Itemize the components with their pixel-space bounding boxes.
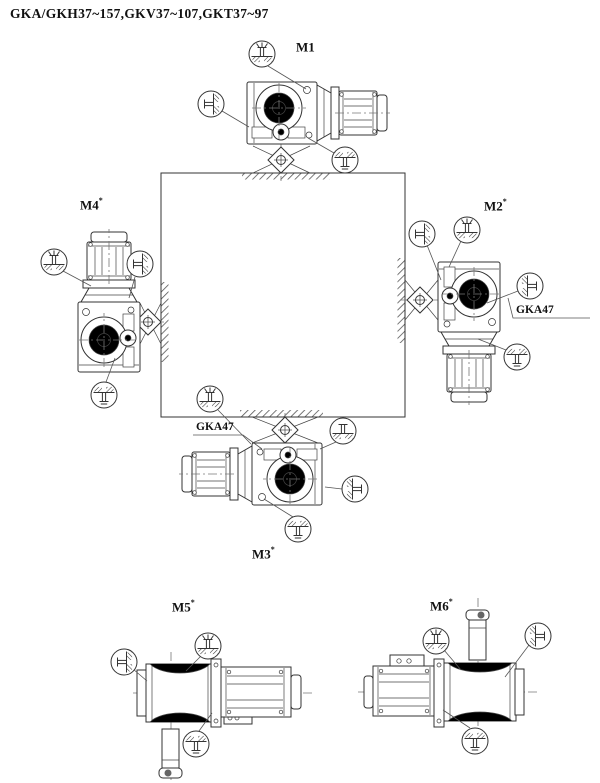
oil-level-plug-icon <box>525 623 551 649</box>
oil-level-plug-icon <box>198 91 224 117</box>
m2-assembly <box>400 217 590 405</box>
m3-flange-mount-symbol <box>272 417 298 443</box>
breather-plug-icon <box>454 217 480 243</box>
breather-plug-icon <box>41 249 67 275</box>
m3-gearmotor-drawing <box>179 443 322 505</box>
oil-drain-plug-icon <box>183 731 209 757</box>
gka47-label-m2: GKA47 <box>516 304 554 316</box>
ceiling-surface-hatch <box>240 410 323 417</box>
mounting-position-diagram-page: GKA/GKH37~157,GKV37~107,GKT37~97 M1 M2* … <box>0 0 600 783</box>
m1-flange-mount-symbol <box>268 147 294 173</box>
position-label-m3: M3* <box>252 546 275 562</box>
m2-gearmotor-drawing <box>438 262 500 405</box>
oil-drain-plug-icon <box>462 728 488 754</box>
oil-drain-plug-icon <box>285 516 311 542</box>
breather-plug-icon <box>195 633 221 659</box>
floor-surface-hatch <box>242 174 330 180</box>
page-title: GKA/GKH37~157,GKV37~107,GKT37~97 <box>10 6 269 22</box>
oil-fill-plug-icon <box>409 221 435 247</box>
position-label-m1: M1 <box>296 39 315 55</box>
m6-assembly <box>358 598 551 754</box>
position-label-m4: M4* <box>80 197 103 213</box>
gka47-label-m3: GKA47 <box>196 421 234 433</box>
right-wall-surface-hatch <box>398 258 405 343</box>
m4-assembly <box>41 229 165 408</box>
mounting-square <box>161 173 405 417</box>
m1-gearmotor-drawing <box>247 82 390 144</box>
m4-gearmotor-drawing <box>78 229 140 372</box>
position-label-m2: M2* <box>484 198 507 214</box>
oil-level-plug-icon <box>111 649 137 675</box>
oil-level-plug-icon <box>127 251 153 277</box>
oil-level-plug-icon <box>517 273 543 299</box>
m1-assembly <box>198 41 390 181</box>
oil-drain-plug-icon <box>332 147 358 173</box>
position-label-m5: M5* <box>172 599 195 615</box>
position-label-m6: M6* <box>430 598 453 614</box>
breather-plug-icon <box>423 628 449 654</box>
oil-drain-plug-icon <box>91 382 117 408</box>
breather-plug-icon <box>197 386 223 412</box>
oil-drain-plug-icon <box>504 344 530 370</box>
oil-level-plug-icon <box>342 476 368 502</box>
mounting-positions-diagram <box>0 0 600 783</box>
m5-assembly <box>111 633 312 781</box>
breather-plug-icon <box>249 41 275 67</box>
m3-assembly <box>179 386 368 542</box>
oil-fill-plug-icon <box>330 418 356 444</box>
